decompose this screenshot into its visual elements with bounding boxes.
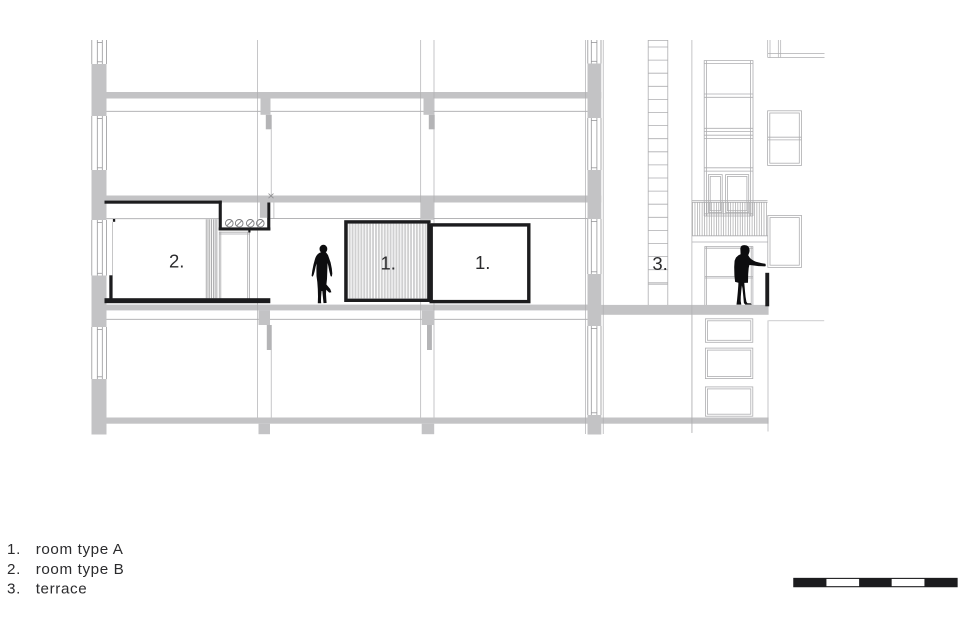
svg-text:3.: 3. <box>652 253 667 274</box>
svg-text:3.terrace: 3.terrace <box>7 581 87 598</box>
svg-text:1.: 1. <box>381 253 396 274</box>
svg-text:2.: 2. <box>169 250 184 271</box>
svg-text:1.: 1. <box>475 252 490 273</box>
